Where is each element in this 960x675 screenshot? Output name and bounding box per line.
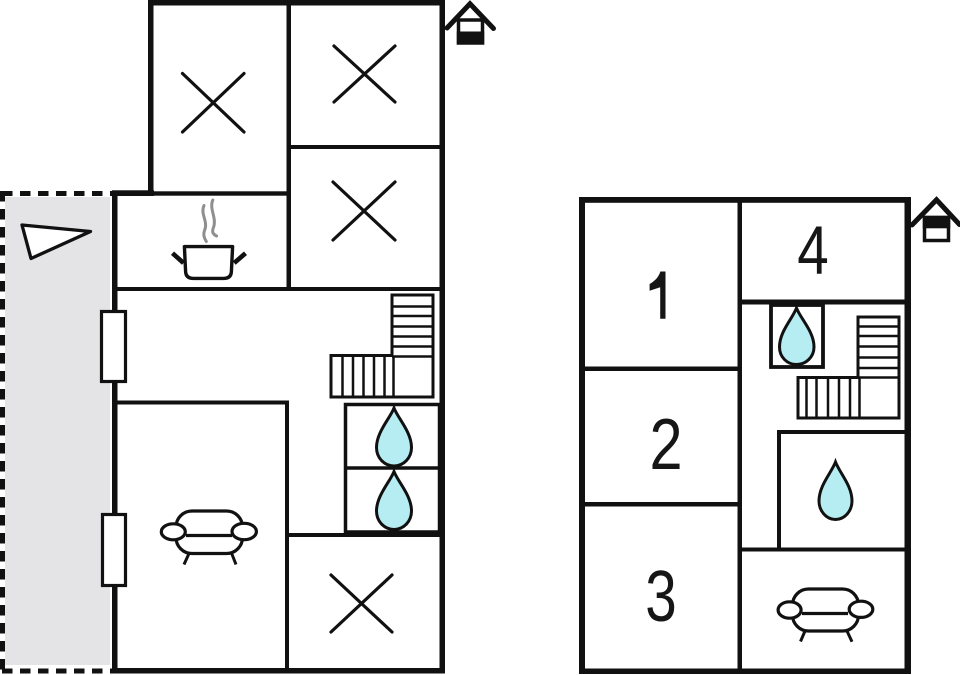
svg-text:3: 3 [645, 555, 676, 636]
svg-text:4: 4 [797, 212, 828, 289]
svg-text:2: 2 [649, 404, 682, 485]
